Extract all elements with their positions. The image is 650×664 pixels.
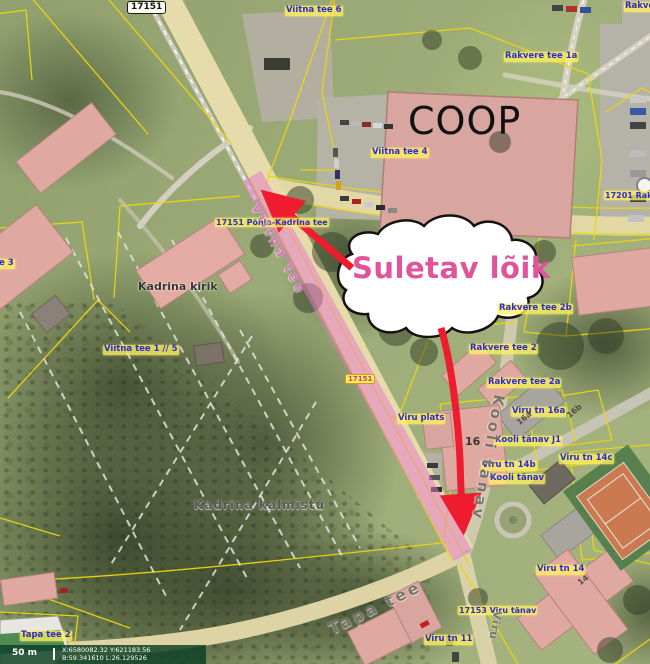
address-label-kooli-tanav: Kooli tänav	[489, 474, 545, 484]
scale-tick	[53, 648, 55, 660]
coordinate-readout: X:6580082.32 Y:621183.56 B:59.341610 L:2…	[62, 647, 150, 662]
coordinate-bl: B:59.341610 L:26.129526	[62, 655, 150, 663]
scale-label: 50 m	[12, 648, 37, 658]
shed	[32, 295, 70, 332]
address-label-rakvere-tee-1a: Rakvere tee 1a	[504, 52, 578, 62]
kadrina-kirik-building	[136, 216, 244, 308]
address-label-viru-tn-11: Viru tn 11	[424, 635, 473, 645]
callout-closed-section-text: Suletav lõik	[352, 252, 551, 285]
building-rakvere-2b	[572, 247, 650, 315]
bus-shape	[264, 58, 290, 70]
shed	[194, 342, 225, 366]
address-label-partial-e3: e 3	[0, 259, 15, 269]
poi-label-kadrina-kirik: Kadrina kirik	[138, 281, 218, 294]
address-label-viitna-tee-4: Viitna tee 4	[371, 148, 429, 158]
address-label-rakvere-tee-2a: Rakvere tee 2a	[487, 378, 561, 388]
park-circle-center	[509, 516, 517, 524]
address-label-viru-plats: Viru plats	[397, 414, 445, 424]
road-name-17201: 17201 Rakv	[604, 191, 650, 200]
address-label-viru-tn-14c: Viru tn 14c	[559, 454, 614, 464]
building-number-16: 16	[465, 436, 480, 449]
address-label-viitna-tee-1-5: Viitna tee 1 // 5	[103, 345, 179, 355]
map-statusbar: 50 m X:6580082.32 Y:621183.56 B:59.34161…	[0, 645, 206, 664]
road-number-badge-on-road: 17151	[345, 374, 375, 384]
address-label-viru-tn-14: Viru tn 14	[536, 565, 585, 575]
address-label-kooli-tanav-j1: Kooli tänav J1	[494, 436, 562, 446]
house-bottom-left	[0, 572, 57, 605]
building-top-left	[16, 103, 116, 194]
address-label-rakvere-tee-2b: Rakvere tee 2b	[498, 304, 573, 314]
address-label-tapa-tee-2: Tapa tee 2	[20, 631, 72, 641]
address-label-rakvere-tee-2: Rakvere tee 2	[469, 344, 538, 354]
address-label-rakvere-partial: Rakve	[624, 2, 650, 12]
road-number-badge: 17151	[127, 1, 166, 14]
address-label-viitna-tee-6: Viitna tee 6	[285, 6, 343, 16]
poi-label-kadrina-kalmistu: Kadrina kalmistu	[194, 499, 325, 513]
map-viewport[interactable]: 17151 Viitna tee 6 Rakve Rakvere tee 1a …	[0, 0, 650, 664]
coop-store-label: COOP	[408, 100, 521, 144]
